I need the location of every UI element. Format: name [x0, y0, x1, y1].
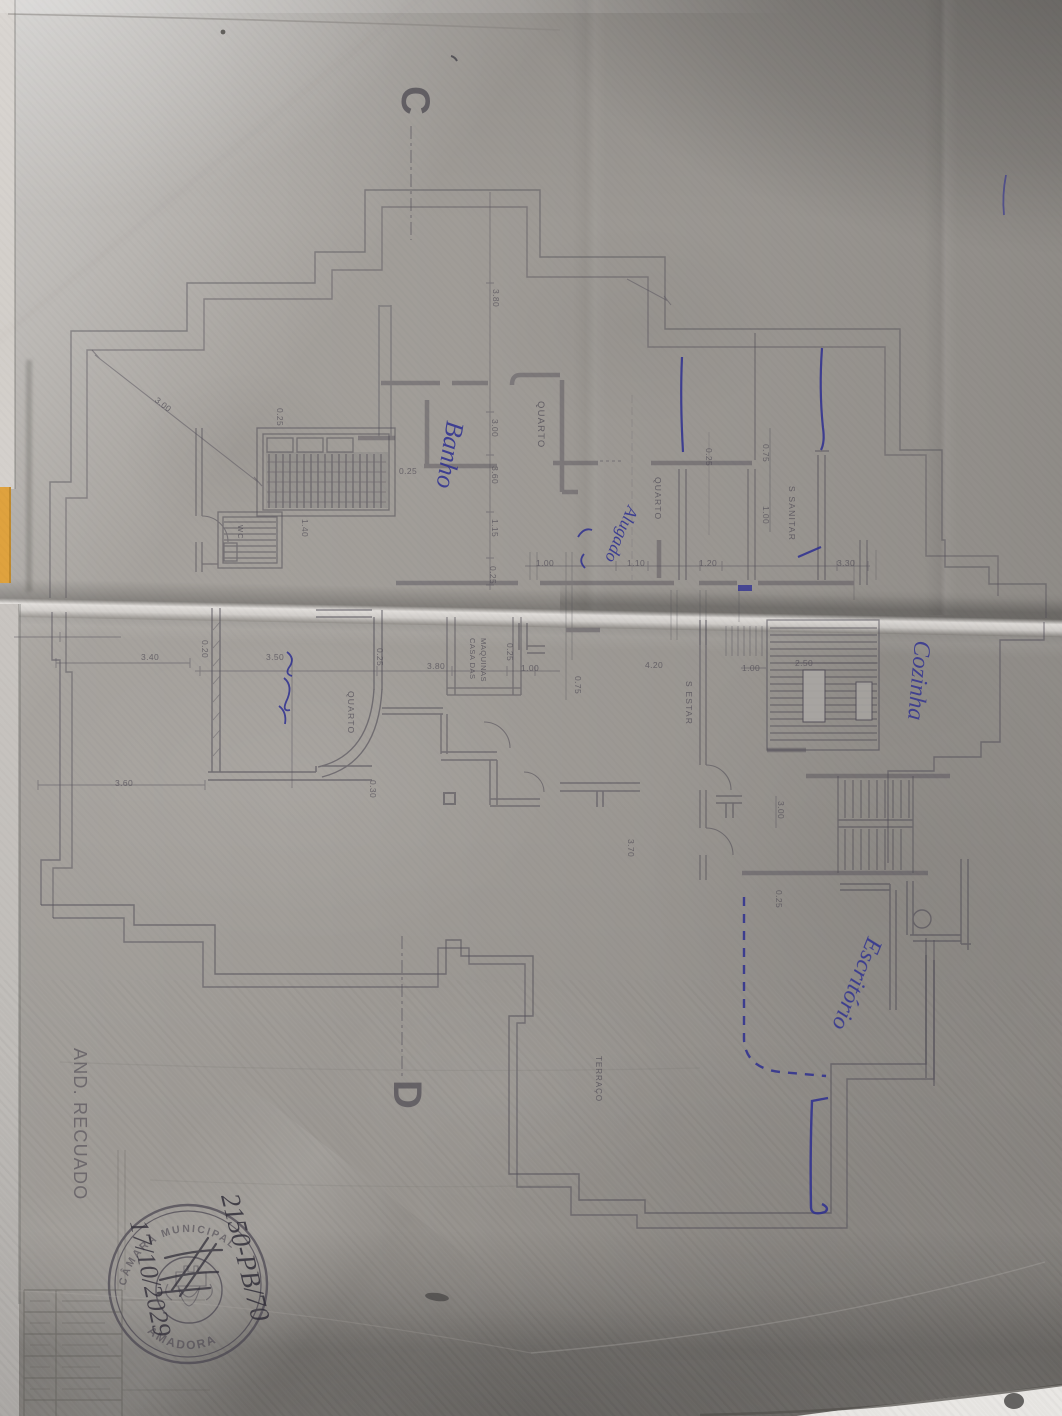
svg-text:1.20: 1.20 — [699, 558, 717, 568]
svg-text:4.20: 4.20 — [645, 660, 663, 670]
svg-text:3.60: 3.60 — [115, 778, 133, 788]
svg-text:3.80: 3.80 — [427, 661, 445, 671]
svg-text:Banho: Banho — [430, 419, 469, 491]
svg-text:S SANITAR: S SANITAR — [787, 486, 797, 541]
svg-text:0.25: 0.25 — [774, 890, 784, 908]
svg-text:MAQUINAS: MAQUINAS — [479, 638, 488, 682]
svg-text:1.00: 1.00 — [536, 558, 554, 568]
svg-text:1.00: 1.00 — [521, 663, 539, 673]
svg-text:1.10: 1.10 — [627, 558, 645, 568]
svg-text:QUARTO: QUARTO — [535, 401, 546, 449]
svg-text:QUARTO: QUARTO — [653, 477, 663, 520]
svg-text:CASA DAS: CASA DAS — [468, 638, 477, 680]
svg-text:0.25: 0.25 — [488, 566, 498, 584]
svg-text:0.75: 0.75 — [573, 676, 583, 694]
svg-text:3.40: 3.40 — [141, 652, 159, 662]
svg-text:0.25: 0.25 — [275, 408, 285, 426]
svg-text:Alugado: Alugado — [601, 503, 643, 567]
svg-text:S ESTAR: S ESTAR — [684, 681, 694, 725]
svg-text:WC: WC — [236, 525, 245, 540]
svg-text:QUARTO: QUARTO — [346, 691, 356, 734]
svg-text:2150-PB/70: 2150-PB/70 — [215, 1190, 276, 1324]
svg-text:0.25: 0.25 — [399, 466, 417, 476]
svg-text:0.25: 0.25 — [505, 643, 515, 661]
svg-text:1.15: 1.15 — [490, 519, 500, 537]
svg-text:0.30: 0.30 — [368, 780, 378, 798]
svg-text:0.20: 0.20 — [200, 640, 210, 658]
svg-text:D: D — [385, 1080, 429, 1109]
svg-text:3.50: 3.50 — [266, 652, 284, 662]
svg-text:3.00: 3.00 — [490, 419, 500, 437]
svg-text:3.00: 3.00 — [153, 395, 173, 414]
svg-text:3.80: 3.80 — [491, 289, 501, 307]
svg-text:AND. RECUADO: AND. RECUADO — [70, 1048, 90, 1200]
svg-text:0.25: 0.25 — [704, 448, 714, 466]
svg-text:1.00: 1.00 — [761, 506, 771, 524]
svg-text:Escritório: Escritório — [826, 933, 887, 1034]
svg-text:C: C — [393, 86, 437, 115]
svg-text:3.30: 3.30 — [837, 558, 855, 568]
svg-text:3.70: 3.70 — [626, 839, 636, 857]
svg-text:TERRAÇO: TERRAÇO — [594, 1056, 603, 1102]
svg-text:Cozinha: Cozinha — [902, 639, 935, 721]
svg-text:3.00: 3.00 — [776, 801, 786, 819]
svg-text:0.25: 0.25 — [375, 648, 385, 666]
svg-text:1.00: 1.00 — [742, 663, 760, 673]
svg-text:0.75: 0.75 — [761, 444, 771, 462]
svg-text:2.50: 2.50 — [795, 658, 813, 668]
svg-text:3.60: 3.60 — [490, 466, 500, 484]
svg-text:1.40: 1.40 — [300, 519, 310, 537]
